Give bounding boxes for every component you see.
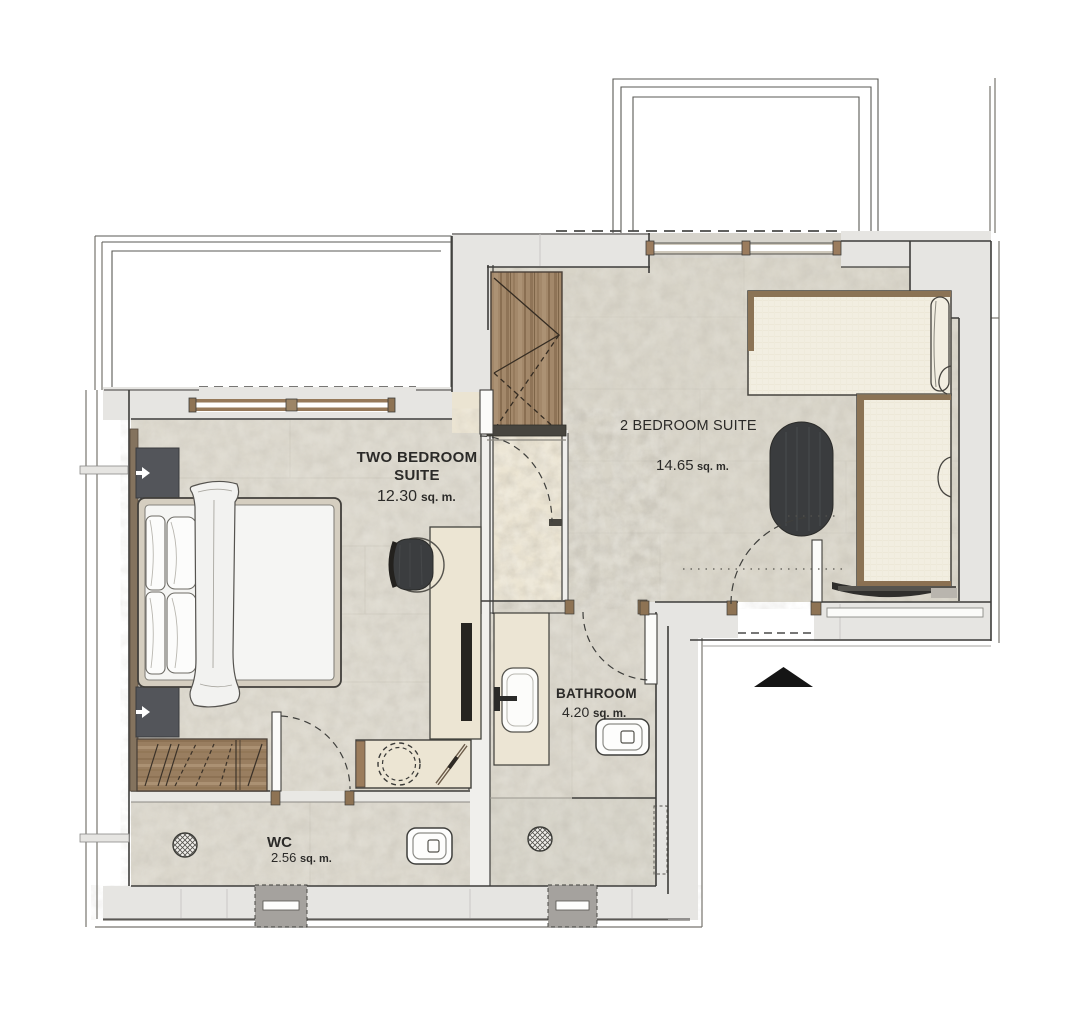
svg-text:12.30: 12.30 — [377, 488, 417, 505]
svg-text:BATHROOM: BATHROOM — [556, 686, 637, 701]
svg-text:sq. m.: sq. m. — [593, 708, 626, 720]
svg-text:WC: WC — [267, 834, 292, 851]
svg-text:2.56: 2.56 — [271, 850, 296, 865]
svg-text:SUITE: SUITE — [394, 467, 440, 484]
svg-text:sq. m.: sq. m. — [697, 461, 729, 473]
svg-text:14.65: 14.65 — [656, 457, 694, 474]
svg-text:TWO BEDROOM: TWO BEDROOM — [357, 449, 478, 466]
svg-text:2 BEDROOM SUITE: 2 BEDROOM SUITE — [620, 418, 757, 434]
svg-text:sq. m.: sq. m. — [300, 853, 332, 865]
svg-text:4.20: 4.20 — [562, 704, 589, 720]
svg-text:sq. m.: sq. m. — [421, 490, 456, 504]
